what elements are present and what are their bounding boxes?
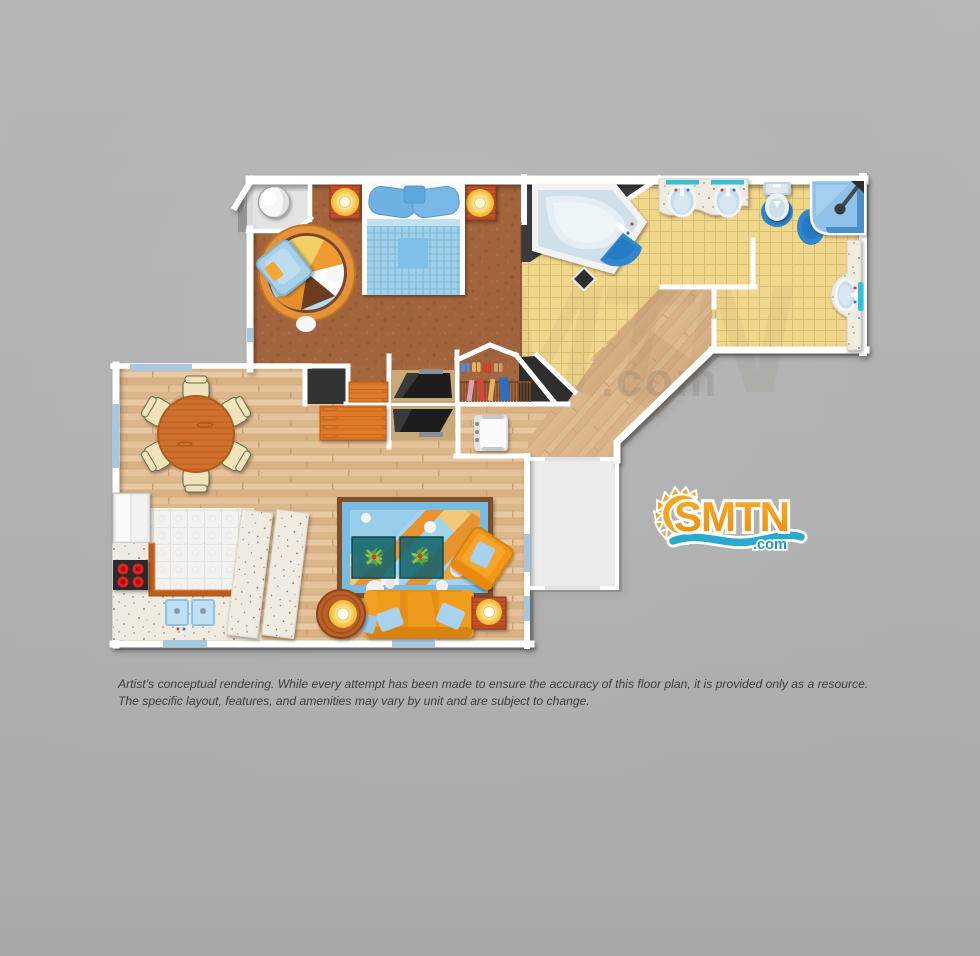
svg-text:.com: .com [753,537,787,553]
svg-text:The specific layout, features,: The specific layout, features, and ameni… [118,694,590,708]
svg-text:SMTN: SMTN [674,493,789,540]
svg-text:Artist’s conceptual rendering.: Artist’s conceptual rendering. While eve… [117,677,868,691]
